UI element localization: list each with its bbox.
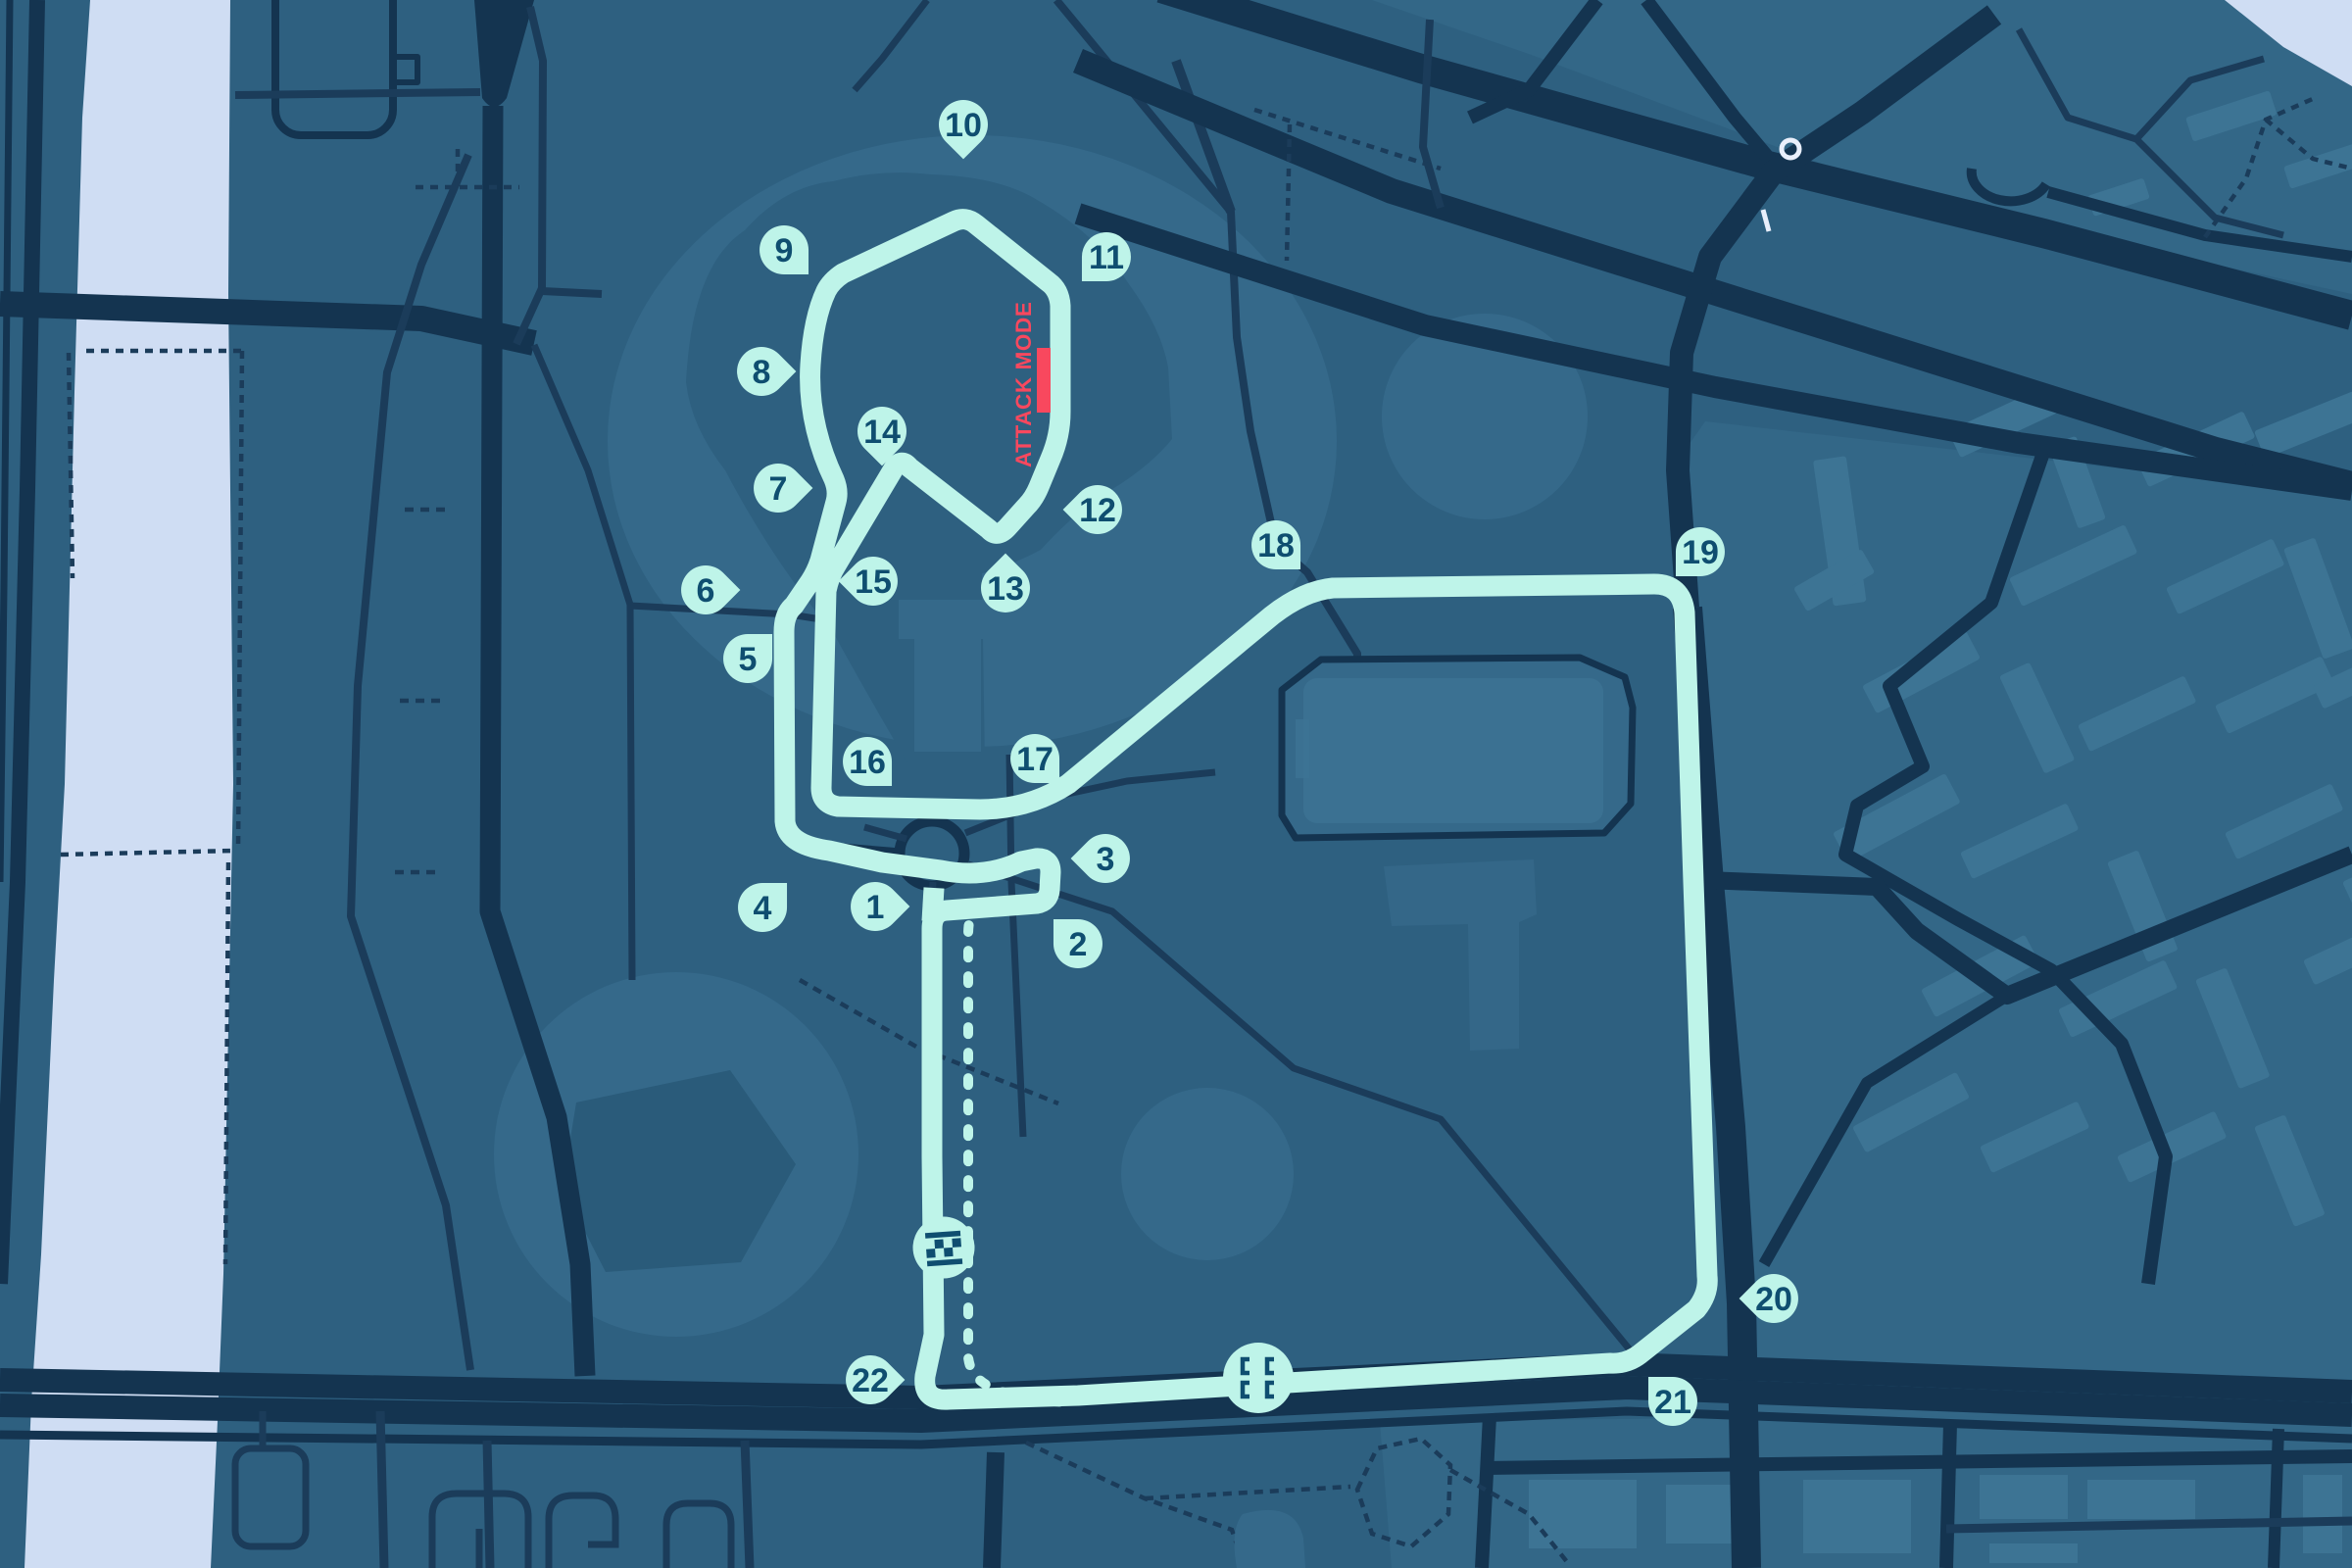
svg-text:21: 21	[1654, 1384, 1691, 1421]
svg-text:6: 6	[697, 572, 715, 610]
svg-text:8: 8	[753, 354, 771, 391]
svg-text:10: 10	[945, 107, 982, 144]
svg-text:12: 12	[1079, 492, 1116, 529]
svg-text:13: 13	[987, 570, 1024, 608]
svg-text:22: 22	[852, 1362, 889, 1399]
svg-text:14: 14	[863, 414, 901, 451]
svg-text:17: 17	[1016, 741, 1053, 778]
svg-text:7: 7	[769, 470, 788, 508]
svg-text:16: 16	[849, 744, 886, 781]
svg-text:5: 5	[739, 641, 758, 678]
svg-text:9: 9	[775, 232, 794, 269]
svg-text:19: 19	[1682, 534, 1719, 571]
svg-text:18: 18	[1257, 527, 1295, 564]
svg-text:20: 20	[1755, 1281, 1792, 1318]
svg-text:15: 15	[855, 563, 892, 601]
svg-text:3: 3	[1097, 841, 1115, 878]
svg-text:1: 1	[866, 889, 885, 926]
svg-text:ATTACK MODE: ATTACK MODE	[1011, 302, 1036, 468]
svg-text:4: 4	[754, 890, 772, 927]
svg-text:2: 2	[1069, 926, 1088, 963]
svg-text:11: 11	[1089, 239, 1124, 276]
